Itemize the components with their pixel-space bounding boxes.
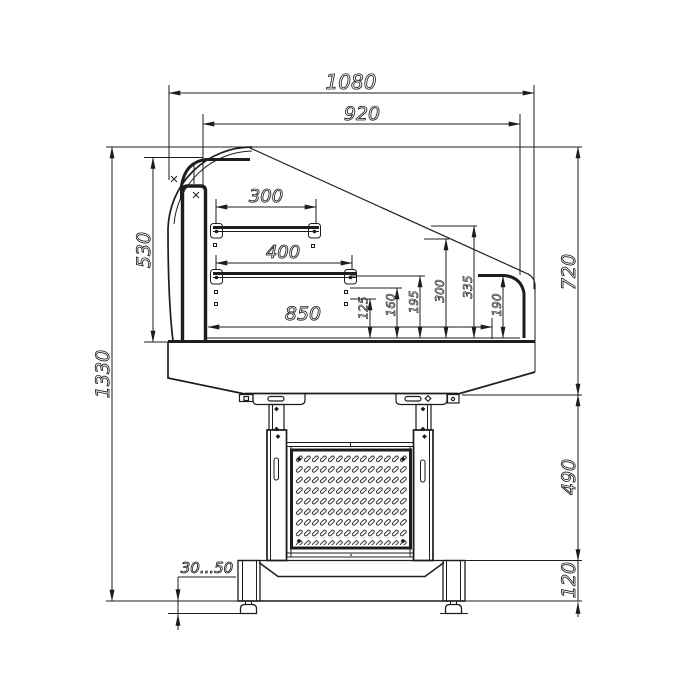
dim-530-label: 530 <box>133 232 155 268</box>
shelf-upper <box>211 224 321 239</box>
dim-400-label: 400 <box>266 242 300 263</box>
shelf-lower <box>211 270 357 285</box>
dim-190-label: 190 <box>490 293 504 316</box>
drawing-sheet: 1080 920 300 400 850 530 1330 720 490 12… <box>0 0 700 700</box>
base-frame <box>238 561 465 602</box>
right-taper <box>458 372 535 394</box>
front-duct-wall <box>183 186 206 341</box>
leg-left <box>267 405 287 561</box>
dim-125-label: 125 <box>357 297 371 320</box>
leg-right <box>414 405 434 561</box>
left-taper <box>168 342 245 394</box>
dim-3050-label: 30...50 <box>181 559 233 577</box>
dim-335-label: 335 <box>461 276 475 299</box>
dim-920-label: 920 <box>344 103 380 125</box>
display-case-body <box>168 147 535 394</box>
condenser-grille <box>295 454 407 546</box>
dim-300-label: 300 <box>249 186 283 207</box>
arc-center-mark <box>171 176 177 182</box>
dim-1080-label: 1080 <box>326 70 377 94</box>
arc-center-mark-2 <box>193 192 199 198</box>
dim-160-label: 160 <box>384 293 398 316</box>
dim-1330-label: 1330 <box>92 350 114 398</box>
top-glass-slant <box>248 147 535 290</box>
foot-right <box>446 601 462 614</box>
dim-850-label: 850 <box>285 303 321 325</box>
foot-left <box>241 601 257 614</box>
dim-490-label: 490 <box>558 459 580 495</box>
dim-300-level-label: 300 <box>433 279 447 302</box>
condenser-unit <box>287 443 414 558</box>
dim-120-label: 120 <box>558 562 580 598</box>
technical-drawing: 1080 920 300 400 850 530 1330 720 490 12… <box>0 0 700 700</box>
dim-720-label: 720 <box>558 254 580 290</box>
mounting-brackets <box>240 394 460 405</box>
front-glass-outer <box>168 147 252 341</box>
dim-195-label: 195 <box>407 291 421 314</box>
